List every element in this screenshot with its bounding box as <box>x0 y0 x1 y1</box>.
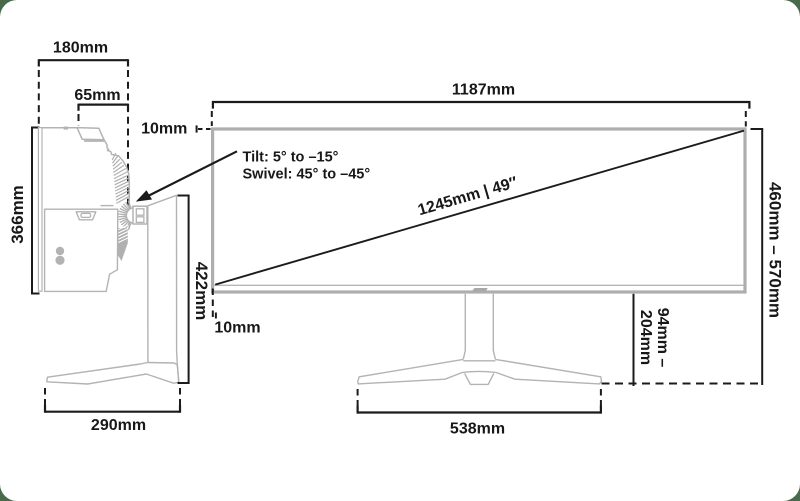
svg-text:204mm: 204mm <box>637 310 654 365</box>
svg-text:460mm – 570mm: 460mm – 570mm <box>765 182 784 318</box>
svg-text:10mm: 10mm <box>214 320 260 337</box>
svg-text:366mm: 366mm <box>8 185 27 244</box>
svg-text:422mm: 422mm <box>192 262 211 321</box>
svg-text:290mm: 290mm <box>91 417 146 434</box>
svg-text:538mm: 538mm <box>450 421 505 438</box>
svg-text:65mm: 65mm <box>74 87 120 104</box>
svg-text:Tilt: 5° to –15°: Tilt: 5° to –15° <box>243 150 339 166</box>
svg-text:1187mm: 1187mm <box>452 82 515 99</box>
svg-text:10mm: 10mm <box>141 120 187 137</box>
svg-text:94mm –: 94mm – <box>654 308 671 368</box>
svg-text:Swivel: 45° to –45°: Swivel: 45° to –45° <box>243 166 371 182</box>
svg-text:180mm: 180mm <box>53 39 108 56</box>
